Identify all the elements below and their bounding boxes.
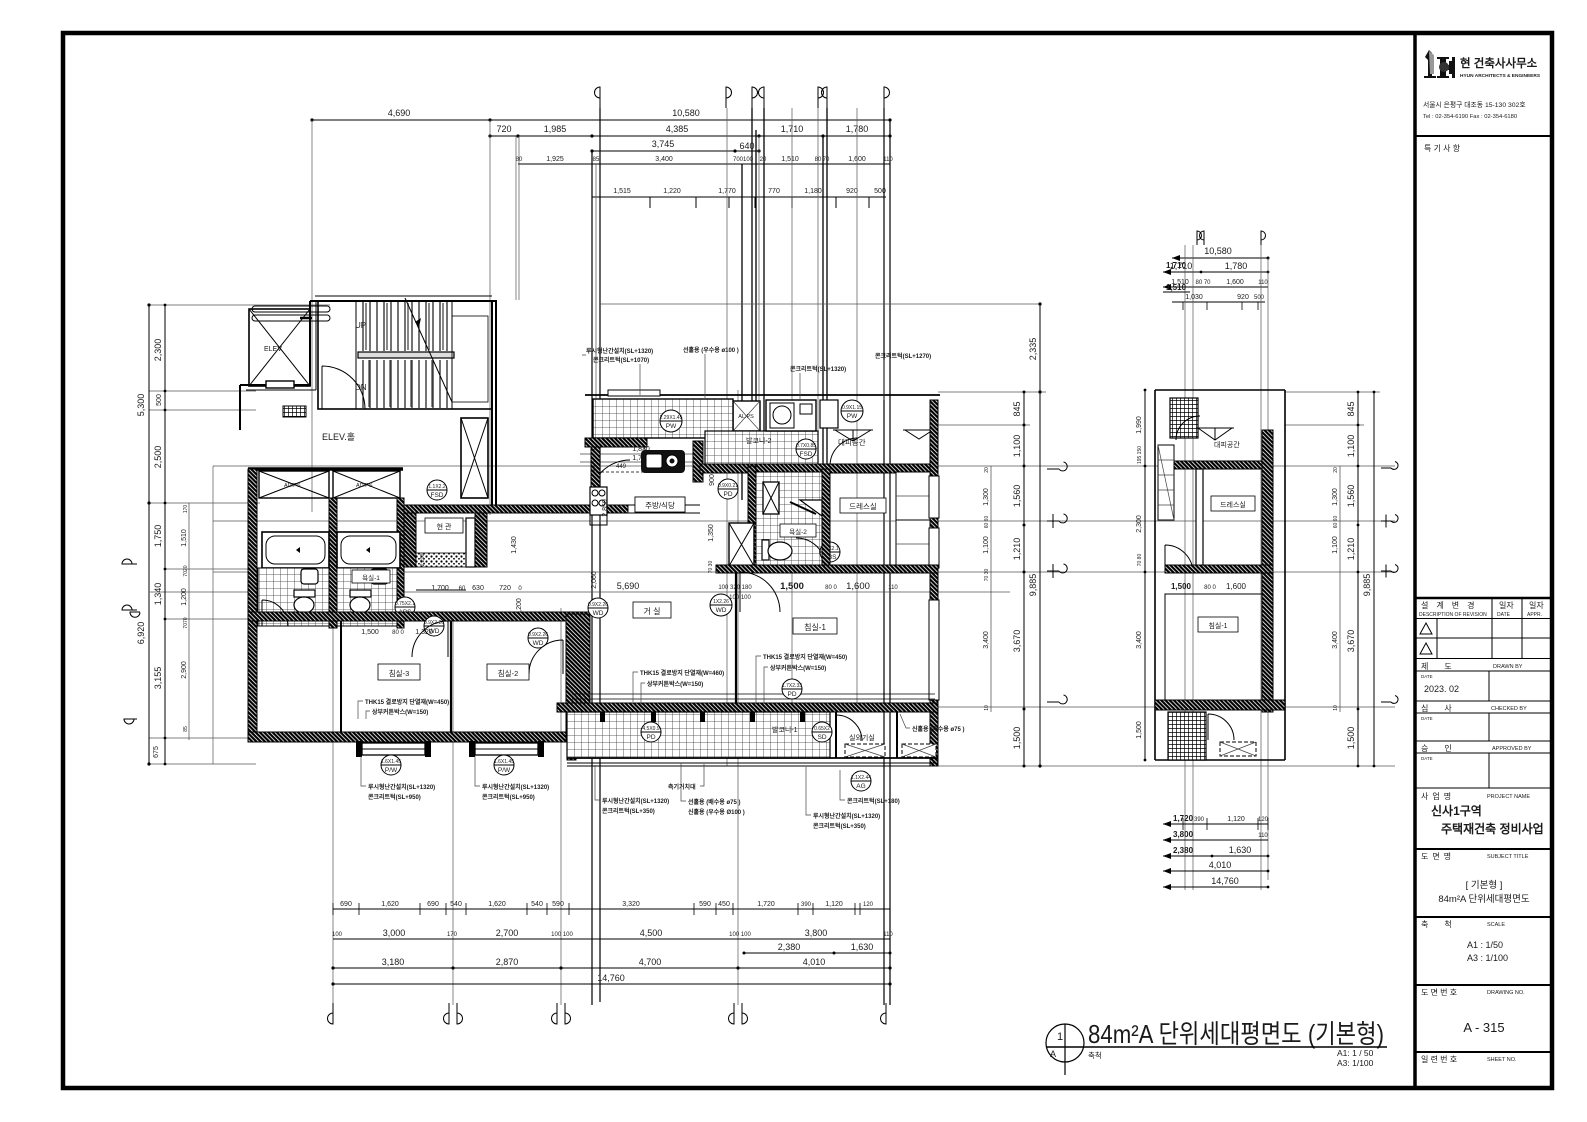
svg-text:0.9X2.26: 0.9X2.26: [528, 632, 548, 638]
svg-text:70 80: 70 80: [1137, 554, 1143, 567]
svg-text:9,885: 9,885: [1028, 574, 1038, 597]
svg-text:3,800: 3,800: [805, 928, 828, 938]
svg-text:0.9X2.26: 0.9X2.26: [588, 602, 608, 608]
svg-text:1,700: 1,700: [431, 585, 449, 592]
svg-text:콘크리트턱(SL+1320): 콘크리트턱(SL+1320): [790, 365, 846, 373]
svg-text:A1 : 1/50: A1 : 1/50: [1467, 940, 1503, 950]
svg-text:ELEV.홀: ELEV.홀: [322, 431, 355, 442]
svg-text:1,510: 1,510: [781, 156, 799, 163]
svg-text:주방/식당: 주방/식당: [645, 500, 675, 510]
svg-text:1,515: 1,515: [613, 188, 631, 195]
svg-text:1,350: 1,350: [708, 524, 715, 542]
svg-text:도 면 명: 도 면 명: [1421, 851, 1451, 861]
svg-text:1,750: 1,750: [153, 525, 163, 548]
svg-text:900: 900: [709, 474, 716, 486]
svg-text:루시형난간설치(SL+1320): 루시형난간설치(SL+1320): [482, 783, 549, 791]
svg-text:0.9X1.15: 0.9X1.15: [842, 405, 862, 411]
svg-text:AL:PS: AL:PS: [738, 414, 754, 420]
svg-text:14,760: 14,760: [1211, 876, 1239, 886]
svg-text:A1: 1 / 50: A1: 1 / 50: [1337, 1048, 1374, 1058]
svg-text:거 실: 거 실: [644, 606, 661, 616]
svg-text:2,900: 2,900: [181, 661, 188, 679]
svg-text:1.6X1.45: 1.6X1.45: [494, 759, 514, 765]
svg-text:루시형난간설치(SL+1320): 루시형난간설치(SL+1320): [602, 797, 669, 805]
svg-text:THK15 결로방지 단열재(W=460): THK15 결로방지 단열재(W=460): [640, 669, 724, 677]
svg-text:110: 110: [883, 157, 893, 163]
svg-text:85: 85: [593, 157, 600, 163]
svg-text:3,400: 3,400: [983, 631, 990, 649]
svg-text:AG: AG: [856, 783, 865, 790]
svg-text:DRAWN BY: DRAWN BY: [1493, 664, 1523, 670]
svg-text:675: 675: [153, 746, 160, 758]
svg-text:0.9X0.21: 0.9X0.21: [718, 483, 738, 489]
svg-text:3,670: 3,670: [1012, 630, 1022, 653]
svg-text:2,700: 2,700: [496, 928, 519, 938]
svg-text:SCALE: SCALE: [1487, 922, 1505, 928]
svg-text:SHEET NO.: SHEET NO.: [1487, 1057, 1517, 1063]
svg-text:2,380: 2,380: [1173, 846, 1194, 855]
svg-text:선홀용 (우수용 ø100 ): 선홀용 (우수용 ø100 ): [683, 346, 739, 354]
svg-text:P/W: P/W: [498, 767, 511, 774]
svg-text:0.65X2: 0.65X2: [814, 726, 830, 732]
svg-text:20: 20: [1333, 467, 1339, 473]
svg-text:콘크리트턱(SL+180): 콘크리트턱(SL+180): [847, 797, 900, 805]
svg-text:특 기 사 항: 특 기 사 항: [1424, 144, 1461, 153]
svg-text:720: 720: [499, 585, 511, 592]
svg-text:120: 120: [863, 902, 874, 908]
svg-text:2,335: 2,335: [1028, 338, 1038, 361]
svg-text:1.6X1.45: 1.6X1.45: [381, 759, 401, 765]
svg-text:100 100: 100 100: [551, 932, 573, 938]
svg-text:대피공간: 대피공간: [1214, 440, 1240, 449]
svg-text:70 30: 70 30: [984, 569, 990, 582]
svg-text:PW: PW: [847, 413, 858, 420]
svg-text:100: 100: [332, 932, 343, 938]
svg-text:1,500: 1,500: [361, 629, 379, 636]
svg-text:루시형난간설치(SL+1320): 루시형난간설치(SL+1320): [368, 783, 435, 791]
svg-text:5,300: 5,300: [136, 394, 146, 417]
svg-text:도 면 번 호: 도 면 번 호: [1421, 987, 1457, 997]
svg-text:2,850: 2,850: [602, 499, 609, 517]
svg-text:80 0: 80 0: [825, 585, 837, 591]
svg-text:WD: WD: [716, 607, 727, 614]
svg-text:1,620: 1,620: [381, 901, 399, 908]
svg-text:1,120: 1,120: [825, 901, 843, 908]
svg-text:9,885: 9,885: [1362, 574, 1372, 597]
svg-text:AD/PS: AD/PS: [284, 483, 301, 489]
svg-text:540: 540: [531, 901, 543, 908]
svg-text:60 60: 60 60: [1333, 516, 1339, 529]
svg-text:3,180: 3,180: [382, 957, 405, 967]
svg-text:1,220: 1,220: [663, 188, 681, 195]
svg-text:드레스실: 드레스실: [1220, 500, 1246, 509]
svg-text:2,300: 2,300: [153, 339, 163, 362]
svg-text:PD: PD: [723, 491, 732, 498]
svg-text:10: 10: [1333, 705, 1339, 711]
svg-text:APPROVED BY: APPROVED BY: [1492, 746, 1532, 752]
svg-text:20: 20: [760, 157, 767, 163]
svg-text:A3: 1/100: A3: 1/100: [1337, 1058, 1374, 1068]
svg-text:PROJECT NAME: PROJECT NAME: [1487, 794, 1530, 800]
svg-text:1,510: 1,510: [1166, 283, 1187, 292]
svg-text:170: 170: [447, 932, 458, 938]
svg-text:2023. 02: 2023. 02: [1424, 684, 1459, 694]
svg-text:3,400: 3,400: [655, 156, 673, 163]
svg-text:4,010: 4,010: [803, 957, 826, 967]
svg-text:A3 : 1/100: A3 : 1/100: [1467, 953, 1508, 963]
svg-text:제 도: 제 도: [1421, 662, 1452, 671]
svg-text:10: 10: [984, 705, 990, 711]
svg-text:현 관: 현 관: [437, 522, 452, 531]
svg-text:1,720: 1,720: [1173, 814, 1194, 823]
svg-text:DATE: DATE: [1497, 612, 1511, 618]
svg-text:2,300: 2,300: [1136, 515, 1143, 533]
svg-text:1,210: 1,210: [1346, 538, 1356, 561]
svg-text:1,200: 1,200: [181, 588, 188, 606]
svg-text:1,560: 1,560: [1012, 485, 1022, 508]
svg-text:축척: 축척: [1088, 1051, 1102, 1060]
svg-text:540: 540: [450, 901, 462, 908]
svg-text:APPR.: APPR.: [1527, 612, 1542, 618]
svg-text:450: 450: [718, 901, 730, 908]
svg-text:84m²A 단위세대평면도: 84m²A 단위세대평면도: [1438, 893, 1530, 905]
svg-text:콘크리트턱(SL+1270): 콘크리트턱(SL+1270): [875, 352, 931, 360]
svg-text:60: 60: [459, 586, 466, 592]
svg-text:3,745: 3,745: [652, 139, 675, 149]
svg-text:1,500: 1,500: [780, 581, 804, 592]
svg-text:1,510: 1,510: [181, 529, 188, 547]
svg-text:1,180: 1,180: [804, 188, 822, 195]
svg-text:침실-1: 침실-1: [804, 622, 826, 632]
svg-text:1,340: 1,340: [153, 583, 163, 606]
svg-text:신홀용 (우수용 Ø100 ): 신홀용 (우수용 Ø100 ): [688, 808, 745, 816]
svg-text:1,300: 1,300: [1332, 488, 1339, 506]
svg-text:2.29X1.45: 2.29X1.45: [660, 415, 683, 421]
svg-text:1,780: 1,780: [1225, 261, 1248, 271]
svg-text:1.1X2.2: 1.1X2.2: [428, 484, 445, 490]
svg-text:110: 110: [1258, 280, 1268, 286]
svg-text:0.9X2.26: 0.9X2.26: [424, 620, 444, 626]
svg-text:FSD: FSD: [800, 451, 813, 458]
svg-text:1,300: 1,300: [983, 488, 990, 506]
svg-text:1,630: 1,630: [1229, 845, 1252, 855]
svg-text:0.7X0.85: 0.7X0.85: [796, 443, 816, 449]
svg-text:7070: 7070: [183, 617, 189, 628]
svg-text:SUBJECT TITLE: SUBJECT TITLE: [1487, 854, 1529, 860]
svg-text:4,700: 4,700: [639, 957, 662, 967]
svg-text:Tel : 02-354-6190 Fax : 02-3: Tel : 02-354-6190 Fax : 02-354-6180: [1423, 114, 1517, 120]
svg-text:선홀용 (배수용 ø75 ): 선홀용 (배수용 ø75 ): [688, 798, 740, 806]
svg-text:3,400: 3,400: [1332, 631, 1339, 649]
svg-text:주택재건축 정비사업: 주택재건축 정비사업: [1441, 821, 1544, 836]
svg-text:1,120: 1,120: [1227, 816, 1245, 823]
svg-text:1,100: 1,100: [983, 536, 990, 554]
svg-text:14,760: 14,760: [597, 973, 625, 983]
svg-text:845: 845: [1012, 401, 1022, 416]
svg-text:1,500: 1,500: [1346, 727, 1356, 750]
svg-text:발코니-2: 발코니-2: [746, 436, 772, 445]
svg-text:1,210: 1,210: [1012, 538, 1022, 561]
svg-text:욕실-1: 욕실-1: [362, 573, 380, 582]
svg-text:일 련 번 호: 일 련 번 호: [1421, 1054, 1457, 1064]
svg-text:1,720: 1,720: [757, 901, 775, 908]
svg-text:1,030: 1,030: [1185, 294, 1203, 301]
svg-text:1,990: 1,990: [1136, 416, 1143, 434]
svg-text:1,100: 1,100: [1346, 435, 1356, 458]
svg-text:심 사: 심 사: [1421, 703, 1452, 713]
svg-text:845: 845: [1346, 401, 1356, 416]
svg-text:서울시 은평구 대조동 15-130 302호: 서울시 은평구 대조동 15-130 302호: [1423, 100, 1526, 109]
svg-text:1,100: 1,100: [1332, 536, 1339, 554]
svg-text:콘크리트턱(SL+950): 콘크리트턱(SL+950): [368, 793, 421, 801]
svg-text:3,800: 3,800: [1173, 830, 1194, 839]
svg-text:1.7X2.33: 1.7X2.33: [782, 683, 802, 689]
svg-text:발코니-1: 발코니-1: [772, 725, 798, 734]
svg-text:2,500: 2,500: [153, 446, 163, 469]
svg-text:승 인: 승 인: [1421, 743, 1452, 753]
svg-text:2,380: 2,380: [778, 942, 801, 952]
svg-text:측기거치대: 측기거치대: [668, 783, 696, 791]
svg-text:720: 720: [496, 124, 511, 134]
svg-text:1X2.26: 1X2.26: [713, 599, 729, 605]
svg-text:드레스실: 드레스실: [849, 501, 877, 511]
svg-text:85: 85: [183, 726, 189, 732]
svg-text:DRAWING NO.: DRAWING NO.: [1487, 990, 1525, 996]
svg-text:AD/PS: AD/PS: [356, 483, 373, 489]
svg-text:축 척: 축 척: [1421, 920, 1452, 929]
svg-text:630: 630: [472, 585, 484, 592]
svg-text:70 30: 70 30: [708, 561, 714, 574]
svg-text:1,500: 1,500: [1136, 721, 1143, 739]
svg-text:1,925: 1,925: [546, 156, 564, 163]
svg-text:195 150: 195 150: [1137, 446, 1143, 464]
svg-text:콘크리트턱(SL+950): 콘크리트턱(SL+950): [482, 793, 535, 801]
svg-text:사 업 명: 사 업 명: [1421, 791, 1451, 801]
svg-text:UP: UP: [355, 321, 366, 330]
svg-text:80 0: 80 0: [392, 630, 404, 636]
svg-text:PW: PW: [666, 423, 677, 430]
svg-text:70: 70: [823, 157, 830, 163]
svg-text:0.75X2.1: 0.75X2.1: [395, 601, 415, 607]
svg-text:신홀용 (배수용 ø75 ): 신홀용 (배수용 ø75 ): [912, 725, 964, 733]
svg-text:60 60: 60 60: [984, 516, 990, 529]
svg-text:690: 690: [427, 901, 439, 908]
svg-text:침실-1: 침실-1: [1208, 621, 1227, 630]
svg-text:설 계 변 경: 설 계 변 경: [1421, 600, 1474, 610]
svg-text:590: 590: [552, 901, 564, 908]
svg-text:390: 390: [801, 902, 812, 908]
svg-text:3,000: 3,000: [383, 928, 406, 938]
svg-text:A: A: [1050, 1049, 1056, 1059]
svg-text:1,600: 1,600: [1226, 279, 1244, 286]
svg-text:DESCRIPTION OF REVISION: DESCRIPTION OF REVISION: [1419, 612, 1487, 618]
svg-text:[ 기본형 ]: [ 기본형 ]: [1466, 880, 1503, 891]
svg-text:ELEV.: ELEV.: [264, 346, 283, 353]
svg-text:콘크리트턱(SL+350): 콘크리트턱(SL+350): [813, 822, 866, 830]
svg-text:1,620: 1,620: [488, 901, 506, 908]
svg-text:590: 590: [699, 901, 711, 908]
svg-text:3,155: 3,155: [153, 667, 163, 690]
svg-text:WD: WD: [533, 640, 544, 647]
svg-text:신사1구역: 신사1구역: [1431, 803, 1482, 818]
svg-text:콘크리트턱(SL+1070): 콘크리트턱(SL+1070): [593, 356, 649, 364]
svg-text:DATE: DATE: [1421, 716, 1433, 721]
svg-text:SD: SD: [817, 734, 826, 741]
svg-text:10,580: 10,580: [1204, 246, 1232, 256]
svg-text:실외기실: 실외기실: [849, 733, 875, 742]
svg-text:7020: 7020: [183, 565, 189, 576]
svg-text:1,320: 1,320: [415, 629, 433, 636]
svg-text:700100: 700100: [733, 157, 754, 163]
svg-text:920: 920: [1237, 294, 1249, 301]
svg-text:침실-2: 침실-2: [498, 668, 518, 678]
svg-text:449: 449: [616, 464, 627, 470]
svg-text:500: 500: [156, 394, 163, 406]
svg-text:4,690: 4,690: [388, 108, 411, 118]
svg-text:1: 1: [1057, 1031, 1063, 1043]
svg-text:3,670: 3,670: [1346, 630, 1356, 653]
svg-text:1,560: 1,560: [1346, 485, 1356, 508]
svg-text:상부커튼박스(W=150): 상부커튼박스(W=150): [647, 680, 703, 688]
svg-text:CHECKED BY: CHECKED BY: [1491, 706, 1527, 712]
svg-text:P/W: P/W: [385, 767, 398, 774]
svg-text:10,580: 10,580: [672, 108, 700, 118]
svg-text:THK15 결로방지 단열재(W=450): THK15 결로방지 단열재(W=450): [365, 698, 449, 706]
svg-text:80 70: 80 70: [1195, 280, 1211, 286]
svg-text:110: 110: [883, 932, 893, 938]
svg-text:DATE: DATE: [1421, 674, 1433, 679]
svg-text:콘크리트턱(SL+350): 콘크리트턱(SL+350): [602, 807, 655, 815]
svg-text:390: 390: [1194, 817, 1205, 823]
svg-text:170: 170: [183, 505, 189, 514]
svg-text:500: 500: [1254, 295, 1265, 301]
svg-text:2,200: 2,200: [420, 554, 426, 567]
svg-text:2,870: 2,870: [496, 957, 519, 967]
svg-text:PD: PD: [787, 691, 796, 698]
svg-text:3,320: 3,320: [622, 901, 640, 908]
svg-text:4,385: 4,385: [666, 124, 689, 134]
svg-text:1,600: 1,600: [846, 581, 870, 592]
svg-text:1,100: 1,100: [1012, 435, 1022, 458]
svg-text:120: 120: [1258, 817, 1269, 823]
svg-text:상부커튼박스(W=150): 상부커튼박스(W=150): [372, 708, 428, 716]
svg-text:1,710: 1,710: [1166, 261, 1187, 270]
svg-text:1,430: 1,430: [511, 536, 518, 554]
svg-text:일자: 일자: [1529, 601, 1544, 610]
svg-text:침실-3: 침실-3: [389, 668, 409, 678]
svg-text:4,010: 4,010: [1209, 860, 1232, 870]
svg-text:PD: PD: [646, 734, 655, 741]
svg-text:110: 110: [888, 585, 898, 591]
svg-text:1,630: 1,630: [851, 942, 874, 952]
svg-text:루시형난간설치(SL+1320): 루시형난간설치(SL+1320): [813, 812, 880, 820]
svg-text:84m²A 단위세대평면도 (기본형): 84m²A 단위세대평면도 (기본형): [1088, 1019, 1384, 1049]
svg-text:일자: 일자: [1499, 601, 1514, 610]
svg-text:현 건축사사무소: 현 건축사사무소: [1460, 56, 1538, 70]
svg-text:3,400: 3,400: [1136, 631, 1143, 649]
svg-text:80 0: 80 0: [1204, 585, 1216, 591]
svg-text:4.5X0.9: 4.5X0.9: [642, 726, 659, 732]
svg-text:20: 20: [984, 467, 990, 473]
svg-text:100 100: 100 100: [729, 932, 751, 938]
svg-text:690: 690: [340, 901, 352, 908]
svg-text:A - 315: A - 315: [1463, 1020, 1504, 1035]
svg-text:920: 920: [846, 188, 858, 195]
svg-text:6,920: 6,920: [136, 622, 146, 645]
svg-text:욕실-2: 욕실-2: [789, 527, 807, 536]
svg-text:루시형난간설치(SL+1320): 루시형난간설치(SL+1320): [586, 347, 653, 355]
svg-text:110: 110: [1258, 833, 1268, 839]
svg-text:FSD: FSD: [431, 492, 444, 499]
svg-text:1,500: 1,500: [1171, 582, 1192, 591]
svg-text:4,500: 4,500: [640, 928, 663, 938]
svg-text:THK15 결로방지 단열재(W=450): THK15 결로방지 단열재(W=450): [763, 653, 847, 661]
svg-text:HYUN ARCHITECTS & ENGINEERS: HYUN ARCHITECTS & ENGINEERS: [1460, 73, 1541, 79]
svg-text:1,500: 1,500: [1012, 727, 1022, 750]
svg-text:2,060: 2,060: [591, 571, 598, 589]
svg-text:1.1X2.44: 1.1X2.44: [851, 775, 871, 781]
svg-text:5,690: 5,690: [617, 581, 640, 591]
svg-text:상부커튼박스(W=150): 상부커튼박스(W=150): [770, 664, 826, 672]
svg-text:1,985: 1,985: [544, 124, 567, 134]
svg-text:WD: WD: [593, 610, 604, 617]
svg-text:770: 770: [768, 188, 780, 195]
svg-text:DATE: DATE: [1421, 756, 1433, 761]
svg-text:1,600: 1,600: [1226, 582, 1247, 591]
